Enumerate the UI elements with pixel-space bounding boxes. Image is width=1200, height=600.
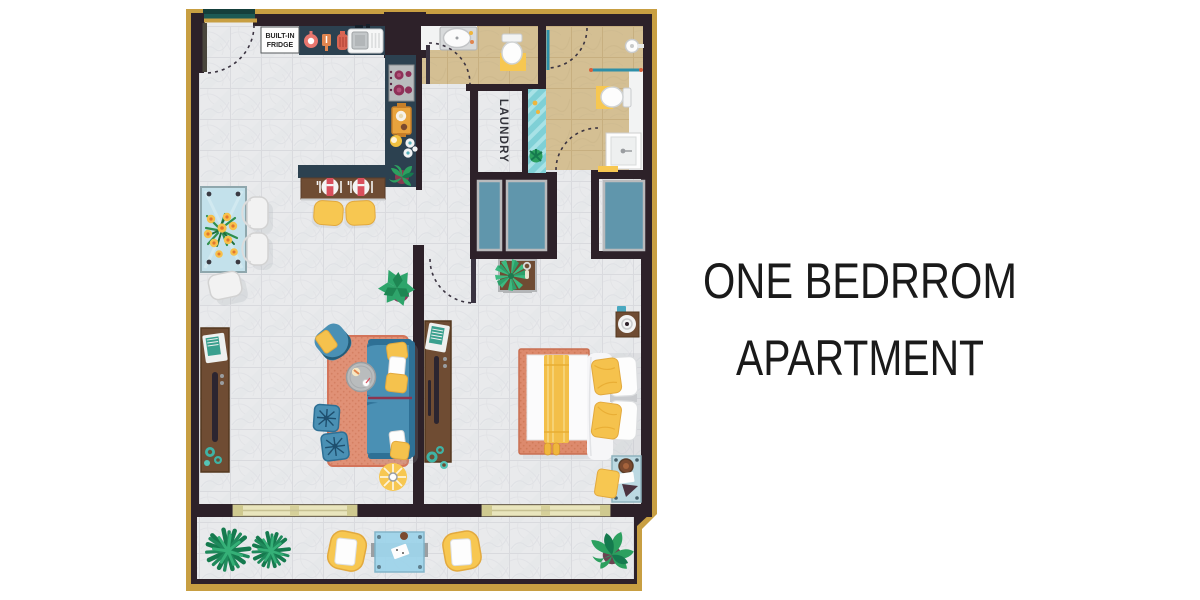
svg-text:LAUNDRY: LAUNDRY xyxy=(497,99,509,163)
svg-text:FRIDGE: FRIDGE xyxy=(267,42,294,49)
svg-text:BUILT-IN: BUILT-IN xyxy=(265,33,294,40)
svg-text:ONE BEDRROM: ONE BEDRROM xyxy=(703,253,1017,309)
svg-text:APARTMENT: APARTMENT xyxy=(736,330,984,386)
